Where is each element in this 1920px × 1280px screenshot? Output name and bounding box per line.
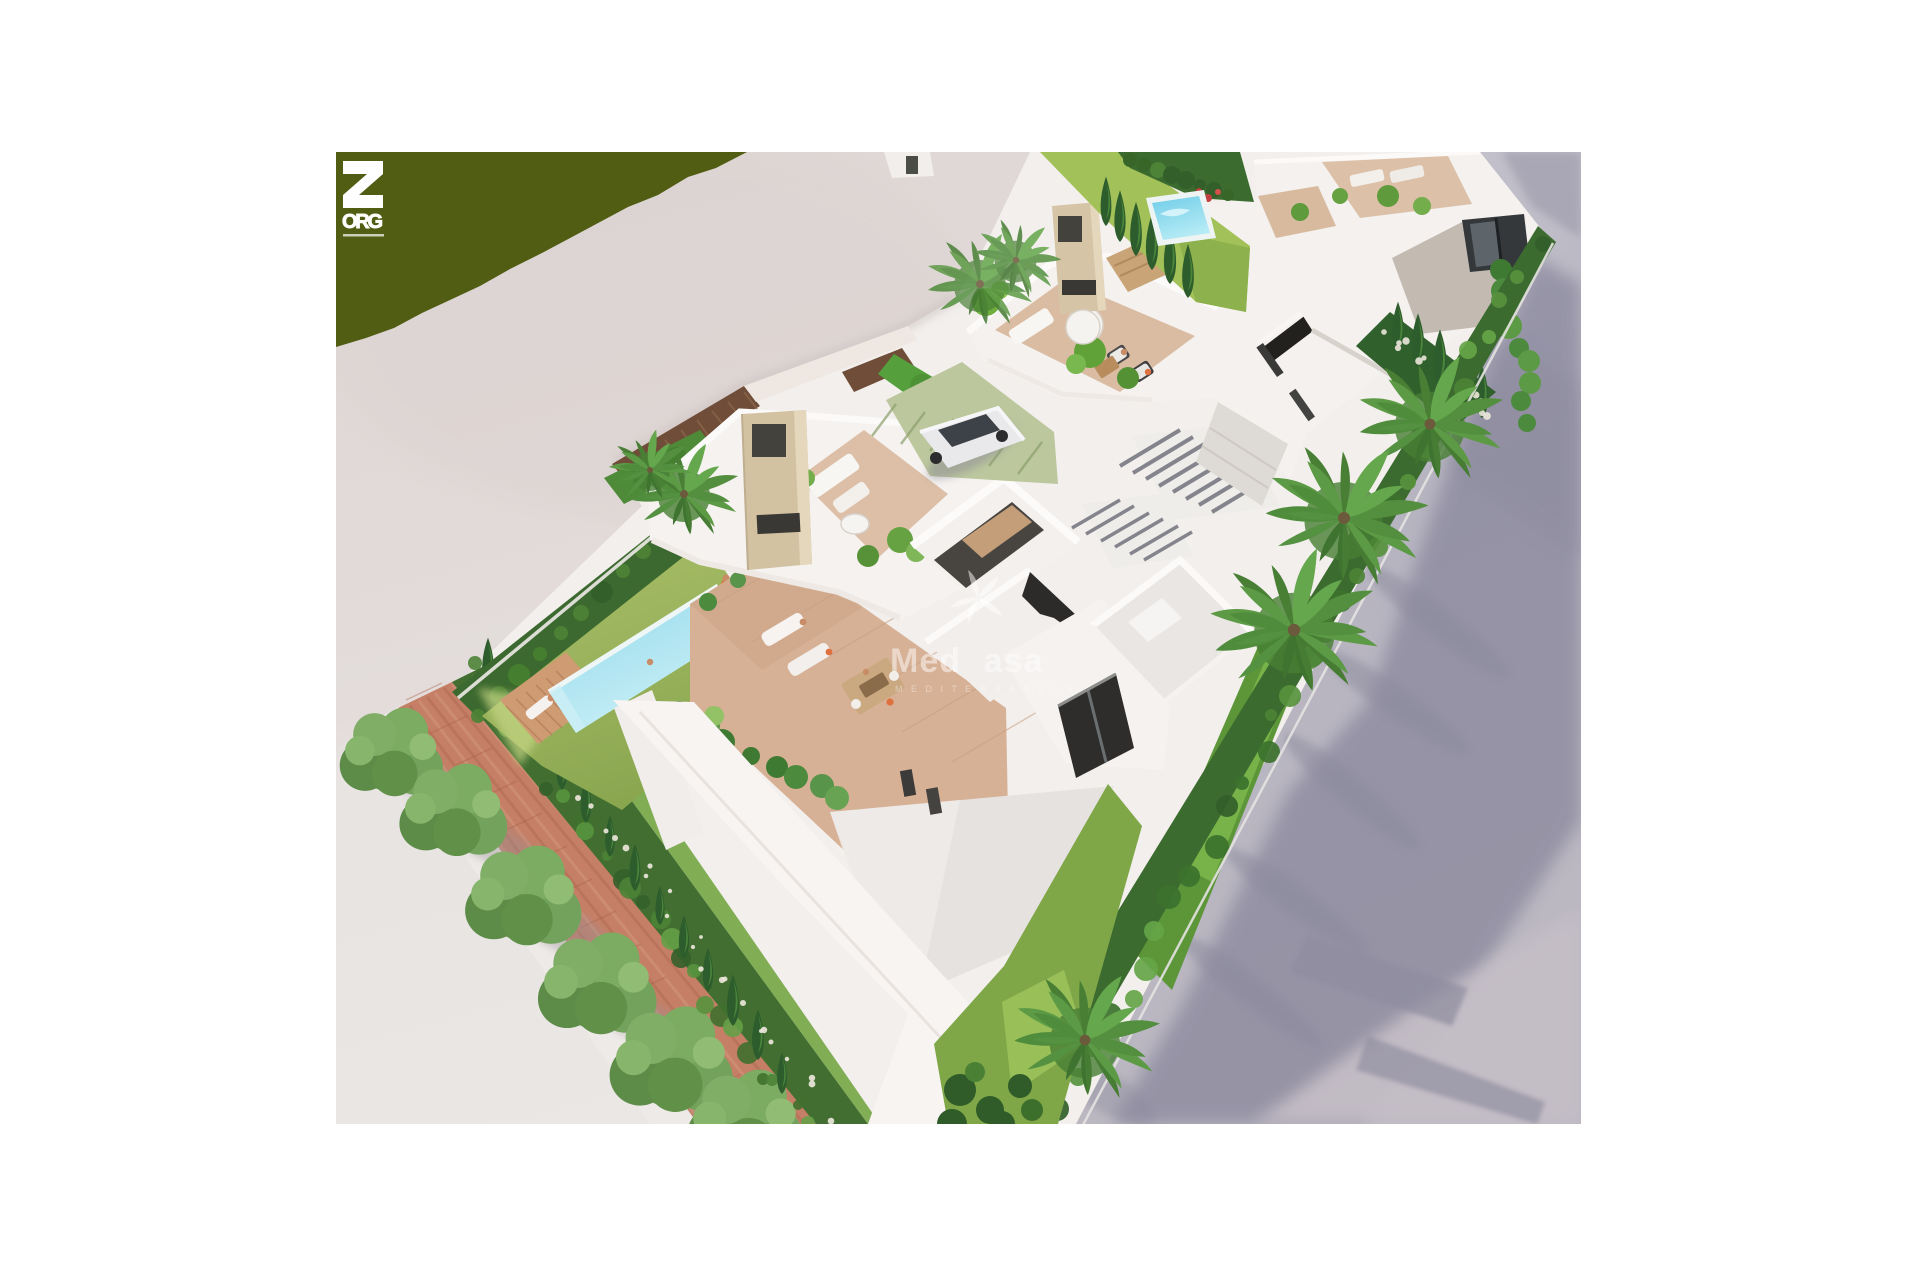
svg-text:M E D I T E R R A N E A N: M E D I T E R R A N E A N (895, 684, 1076, 694)
svg-text:Meditasa: Meditasa (890, 642, 1044, 680)
svg-text:ORG: ORG (342, 211, 384, 233)
